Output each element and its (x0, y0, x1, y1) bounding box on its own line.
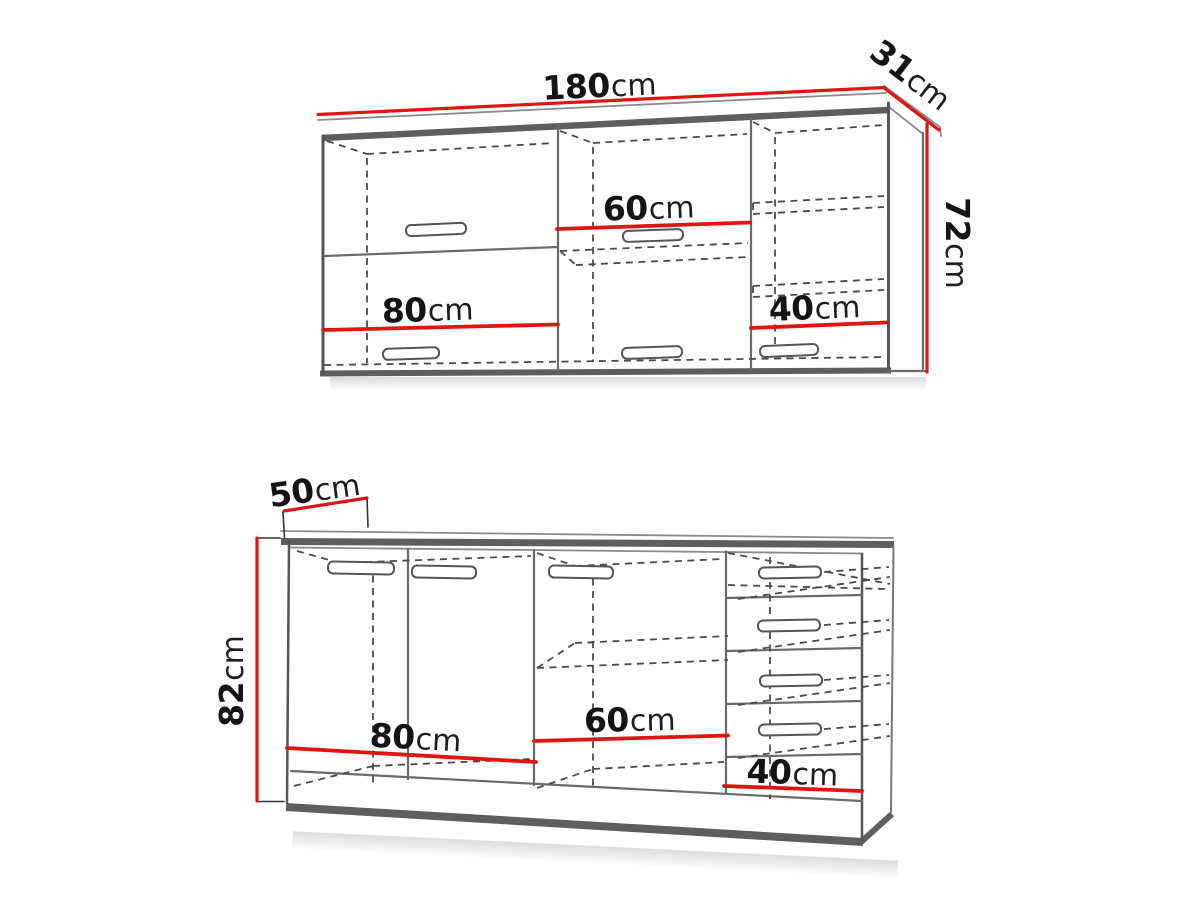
lower-drawer3-handle (760, 674, 822, 686)
lower-left-section-label: 80cm (369, 716, 463, 760)
lower-middle-door-handle (549, 565, 613, 578)
lower-cabinet-drawing: 50cm 82cm 80cm 60cm 40cm (212, 464, 898, 879)
upper-middle-top-door-handle (623, 229, 683, 242)
upper-left-top-door-handle (406, 223, 466, 237)
lower-drawer1-handle (759, 566, 821, 578)
upper-left-bottom-door-handle (383, 347, 439, 360)
lower-left-door2-handle (412, 565, 476, 578)
upper-cabinet-drawing: 180cm 31cm 72cm 80cm 60cm 40cm (318, 32, 977, 391)
upper-left-section-label: 80cm (381, 288, 474, 330)
lower-cabinet-handles (328, 561, 822, 735)
lower-right-section-label: 40cm (746, 751, 839, 793)
upper-height-label: 72cm (938, 197, 977, 289)
upper-middle-bottom-door-handle (622, 346, 682, 359)
lower-drawer4-handle (759, 723, 821, 735)
lower-drawer2-handle (758, 619, 820, 631)
upper-middle-section-label: 60cm (602, 186, 695, 228)
lower-left-door1-handle (328, 561, 394, 574)
upper-cabinet-shadow (330, 377, 926, 391)
lower-middle-section-label: 60cm (583, 699, 676, 740)
lower-height-label: 82cm (212, 635, 251, 727)
lower-depth-label: 50cm (266, 464, 362, 515)
upper-right-door-handle (760, 344, 818, 358)
upper-width-label: 180cm (542, 63, 658, 107)
cabinet-diagram-canvas: 180cm 31cm 72cm 80cm 60cm 40cm (0, 0, 1200, 899)
furniture-dimension-diagram: 180cm 31cm 72cm 80cm 60cm 40cm (0, 0, 1200, 899)
upper-right-section-label: 40cm (768, 286, 861, 329)
